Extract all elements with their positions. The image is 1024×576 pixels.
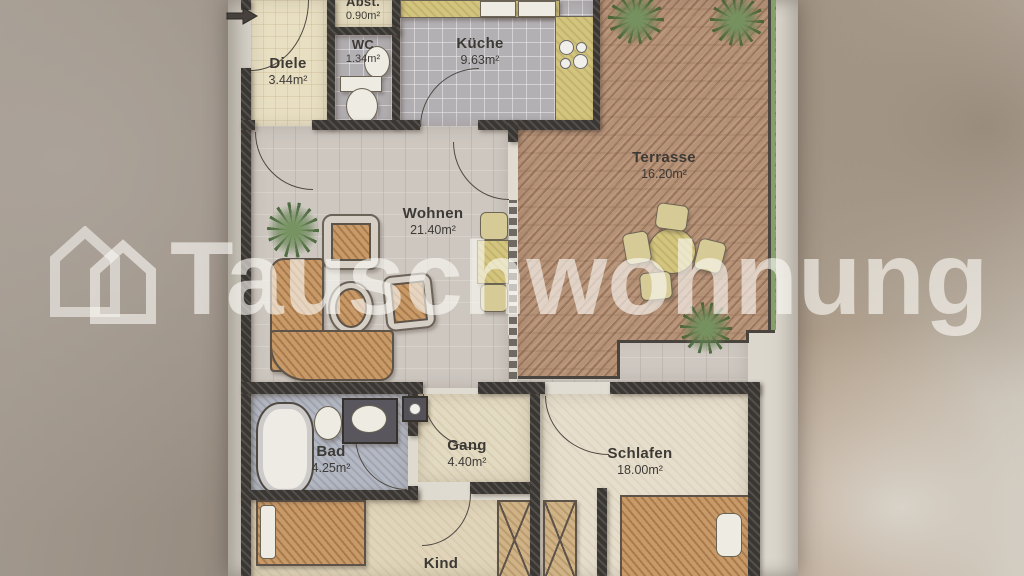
wall-wohnen-terrasse-top xyxy=(508,120,518,142)
single-bed xyxy=(256,500,366,566)
wall-wohnen-top-a xyxy=(241,120,255,130)
kitchen-counter-right xyxy=(555,16,595,128)
room-label-kind: Kind xyxy=(398,556,484,573)
room-label-diele: Diele 3.44m² xyxy=(246,56,330,87)
washer-door xyxy=(409,403,421,415)
wardrobe xyxy=(497,500,532,576)
floor-plan-photo: Diele 3.44m² Abst. 0.90m² WC 1.34m² Küch… xyxy=(0,0,1024,576)
wall-kueche-terrasse xyxy=(593,0,600,126)
room-label-kueche: Küche 9.63m² xyxy=(428,36,532,67)
cooktop-burner xyxy=(559,40,574,55)
kitchen-appliance xyxy=(518,1,556,17)
wall-bottom-a xyxy=(241,382,423,394)
terrace-chair xyxy=(621,230,652,266)
wardrobe xyxy=(543,500,577,576)
armchair-cushion xyxy=(390,280,428,323)
terrace-step-line xyxy=(746,330,775,333)
room-label-gang: Gang 4.40m² xyxy=(424,438,510,469)
coffee-table-top xyxy=(335,288,367,328)
dining-table xyxy=(477,240,509,284)
plant-icon xyxy=(267,202,319,258)
entrance-arrow-icon xyxy=(226,7,258,25)
bathroom-sink xyxy=(314,406,342,440)
wall-bottom-b xyxy=(478,382,545,394)
vanity-basin xyxy=(351,405,387,433)
wall-wohnen-top-b xyxy=(312,120,420,130)
terrace-bottom-line-left xyxy=(518,376,617,379)
wall-bottom-c xyxy=(610,382,760,394)
wall-gang-schlafen xyxy=(530,394,540,576)
terrace-bottom-line-step xyxy=(617,340,620,379)
terrace-chair xyxy=(654,202,689,232)
wall-gang-bottom xyxy=(470,482,532,494)
cooktop-burner xyxy=(573,54,588,69)
double-bed xyxy=(620,495,752,576)
room-label-terrasse: Terrasse 16.20m² xyxy=(604,150,724,181)
armchair xyxy=(322,214,380,270)
plant-icon xyxy=(680,302,732,354)
wc-toilet xyxy=(346,88,378,124)
armchair-cushion xyxy=(331,223,371,261)
wall-bad-bottom xyxy=(241,490,418,500)
outer-wall-right xyxy=(748,382,760,576)
vanity-counter xyxy=(342,398,398,444)
pillow xyxy=(260,505,276,559)
terrace-green-border xyxy=(771,0,775,332)
cooktop-burner xyxy=(560,58,571,69)
wall-schlafen-closet xyxy=(597,488,607,576)
room-label-wohnen: Wohnen 21.40m² xyxy=(378,206,488,237)
kitchen-appliance xyxy=(480,1,516,17)
terrace-chair xyxy=(639,271,673,302)
coffee-table xyxy=(328,281,374,335)
room-label-schlafen: Schlafen 18.00m² xyxy=(588,446,692,477)
pillow xyxy=(716,513,742,557)
terrace-table xyxy=(648,228,696,274)
cooktop-burner xyxy=(576,42,587,53)
wall-wohnen-top-c xyxy=(478,120,600,130)
room-label-bad: Bad 4.25m² xyxy=(288,444,374,475)
sofa xyxy=(270,330,394,381)
room-label-abstellraum: Abst. 0.90m² xyxy=(332,0,394,22)
window-wohnen-terrasse xyxy=(509,200,517,390)
dining-chair xyxy=(480,284,508,312)
room-label-wc: WC 1.34m² xyxy=(334,38,392,65)
floor-plan-paper: Diele 3.44m² Abst. 0.90m² WC 1.34m² Küch… xyxy=(228,0,798,576)
washing-machine xyxy=(402,396,428,422)
armchair xyxy=(381,272,437,333)
wall-abst-wc xyxy=(327,27,400,35)
